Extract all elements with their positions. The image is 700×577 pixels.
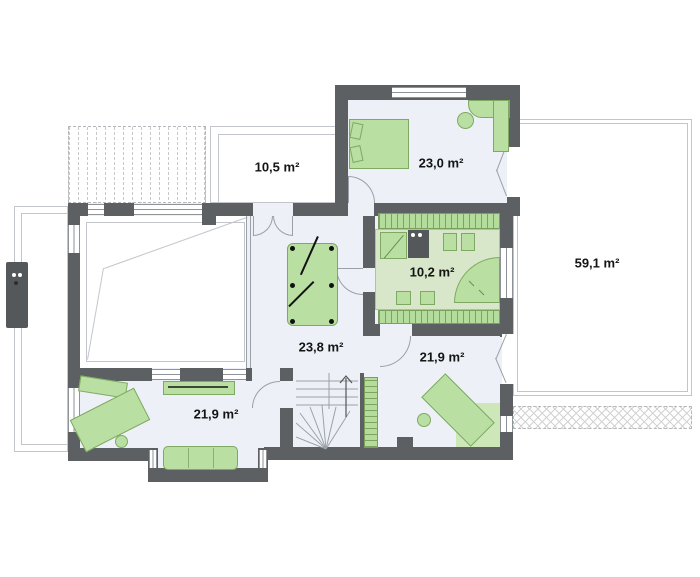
window-bedroom-top [392,87,466,98]
pocket-5 [290,319,295,324]
wall-bl-bottom [68,448,152,461]
window-void-top-2 [134,204,202,215]
pocket-1 [290,246,295,251]
void-railing-2 [250,216,251,368]
bath-fixture-1 [396,291,411,305]
french-door-gap [253,203,293,216]
wall-void-left-lower [68,253,80,368]
pocket-3 [290,283,295,288]
window-bathroom [500,248,513,298]
pocket-6 [329,319,334,324]
window-void-left [68,225,80,253]
bedroom-door-gap [348,203,374,216]
window-void-top-1 [88,204,104,215]
chimney-flue-2 [18,273,22,277]
roof-hatch-area [68,126,206,203]
wardrobe-top [378,213,500,229]
pocket-2 [329,246,334,251]
void-railing-1 [246,216,247,368]
label-bedroom-top: 23,0 m² [419,156,464,171]
sofa [163,446,238,470]
chimney-flue-1 [12,273,16,277]
pocket-4 [329,283,334,288]
eaves-outline-inner [21,213,68,445]
staircase [296,373,360,450]
wall-pillar-stub [202,216,216,225]
door-gap-bl-room [280,381,293,408]
chimney [6,262,28,328]
sink-2 [418,233,422,237]
wall-br-right-mid [500,384,513,416]
floor-plan: 10,5 m² 23,0 m² 59,1 m² 10,2 m² 23,8 m² … [0,0,700,577]
toilet [443,233,457,251]
stool-br [417,413,431,427]
wall-void-left-upper [68,203,80,225]
wall-bath-right-upper [500,213,513,248]
bath-fixture-2 [420,291,435,305]
chimney-flue-3 [14,281,18,285]
alcove-bottom-wall [148,468,268,482]
window-br-room [500,416,513,432]
closet-by-stairs [364,377,378,448]
door-gap-br-room [380,324,412,336]
wall-below-wardrobe [412,324,512,336]
label-bedroom-br: 21,9 m² [420,350,465,365]
wall-bath-left-upper [363,216,375,268]
wall-void-bottom-2 [180,368,223,381]
wall-bedroom-left [335,98,348,216]
sofa-divider-2 [213,448,214,468]
label-balcony: 10,5 m² [255,160,300,175]
bidet [461,233,475,251]
wardrobe-bottom [378,310,502,324]
label-hall: 23,8 m² [299,340,344,355]
sink-1 [411,233,415,237]
dresser-line [168,386,228,388]
window-void-bottom-1 [152,369,180,380]
wall-bath-left-corner [363,324,380,336]
terrace-door-gap-bedroom [507,147,520,197]
wall-main-seg4 [293,203,348,216]
stool-bl [115,435,128,448]
wall-main-seg2 [104,203,134,216]
desk-chair [457,112,474,129]
wall-br-stub [397,437,413,447]
sofa-divider-1 [188,448,189,468]
window-void-bottom-2 [223,369,246,380]
dresser [163,381,235,395]
void-inset-line [86,222,245,362]
window-alcove-left [149,450,157,468]
label-bedroom-bl: 21,9 m² [194,407,239,422]
window-alcove-right [259,450,267,468]
wall-void-bottom-3 [246,368,252,381]
terrace-edge-hatch [513,406,692,429]
label-bathroom: 10,2 m² [410,265,455,280]
wall-main-seg3 [202,203,253,216]
label-terrace: 59,1 m² [575,256,620,271]
corner-desk-right [493,100,509,152]
